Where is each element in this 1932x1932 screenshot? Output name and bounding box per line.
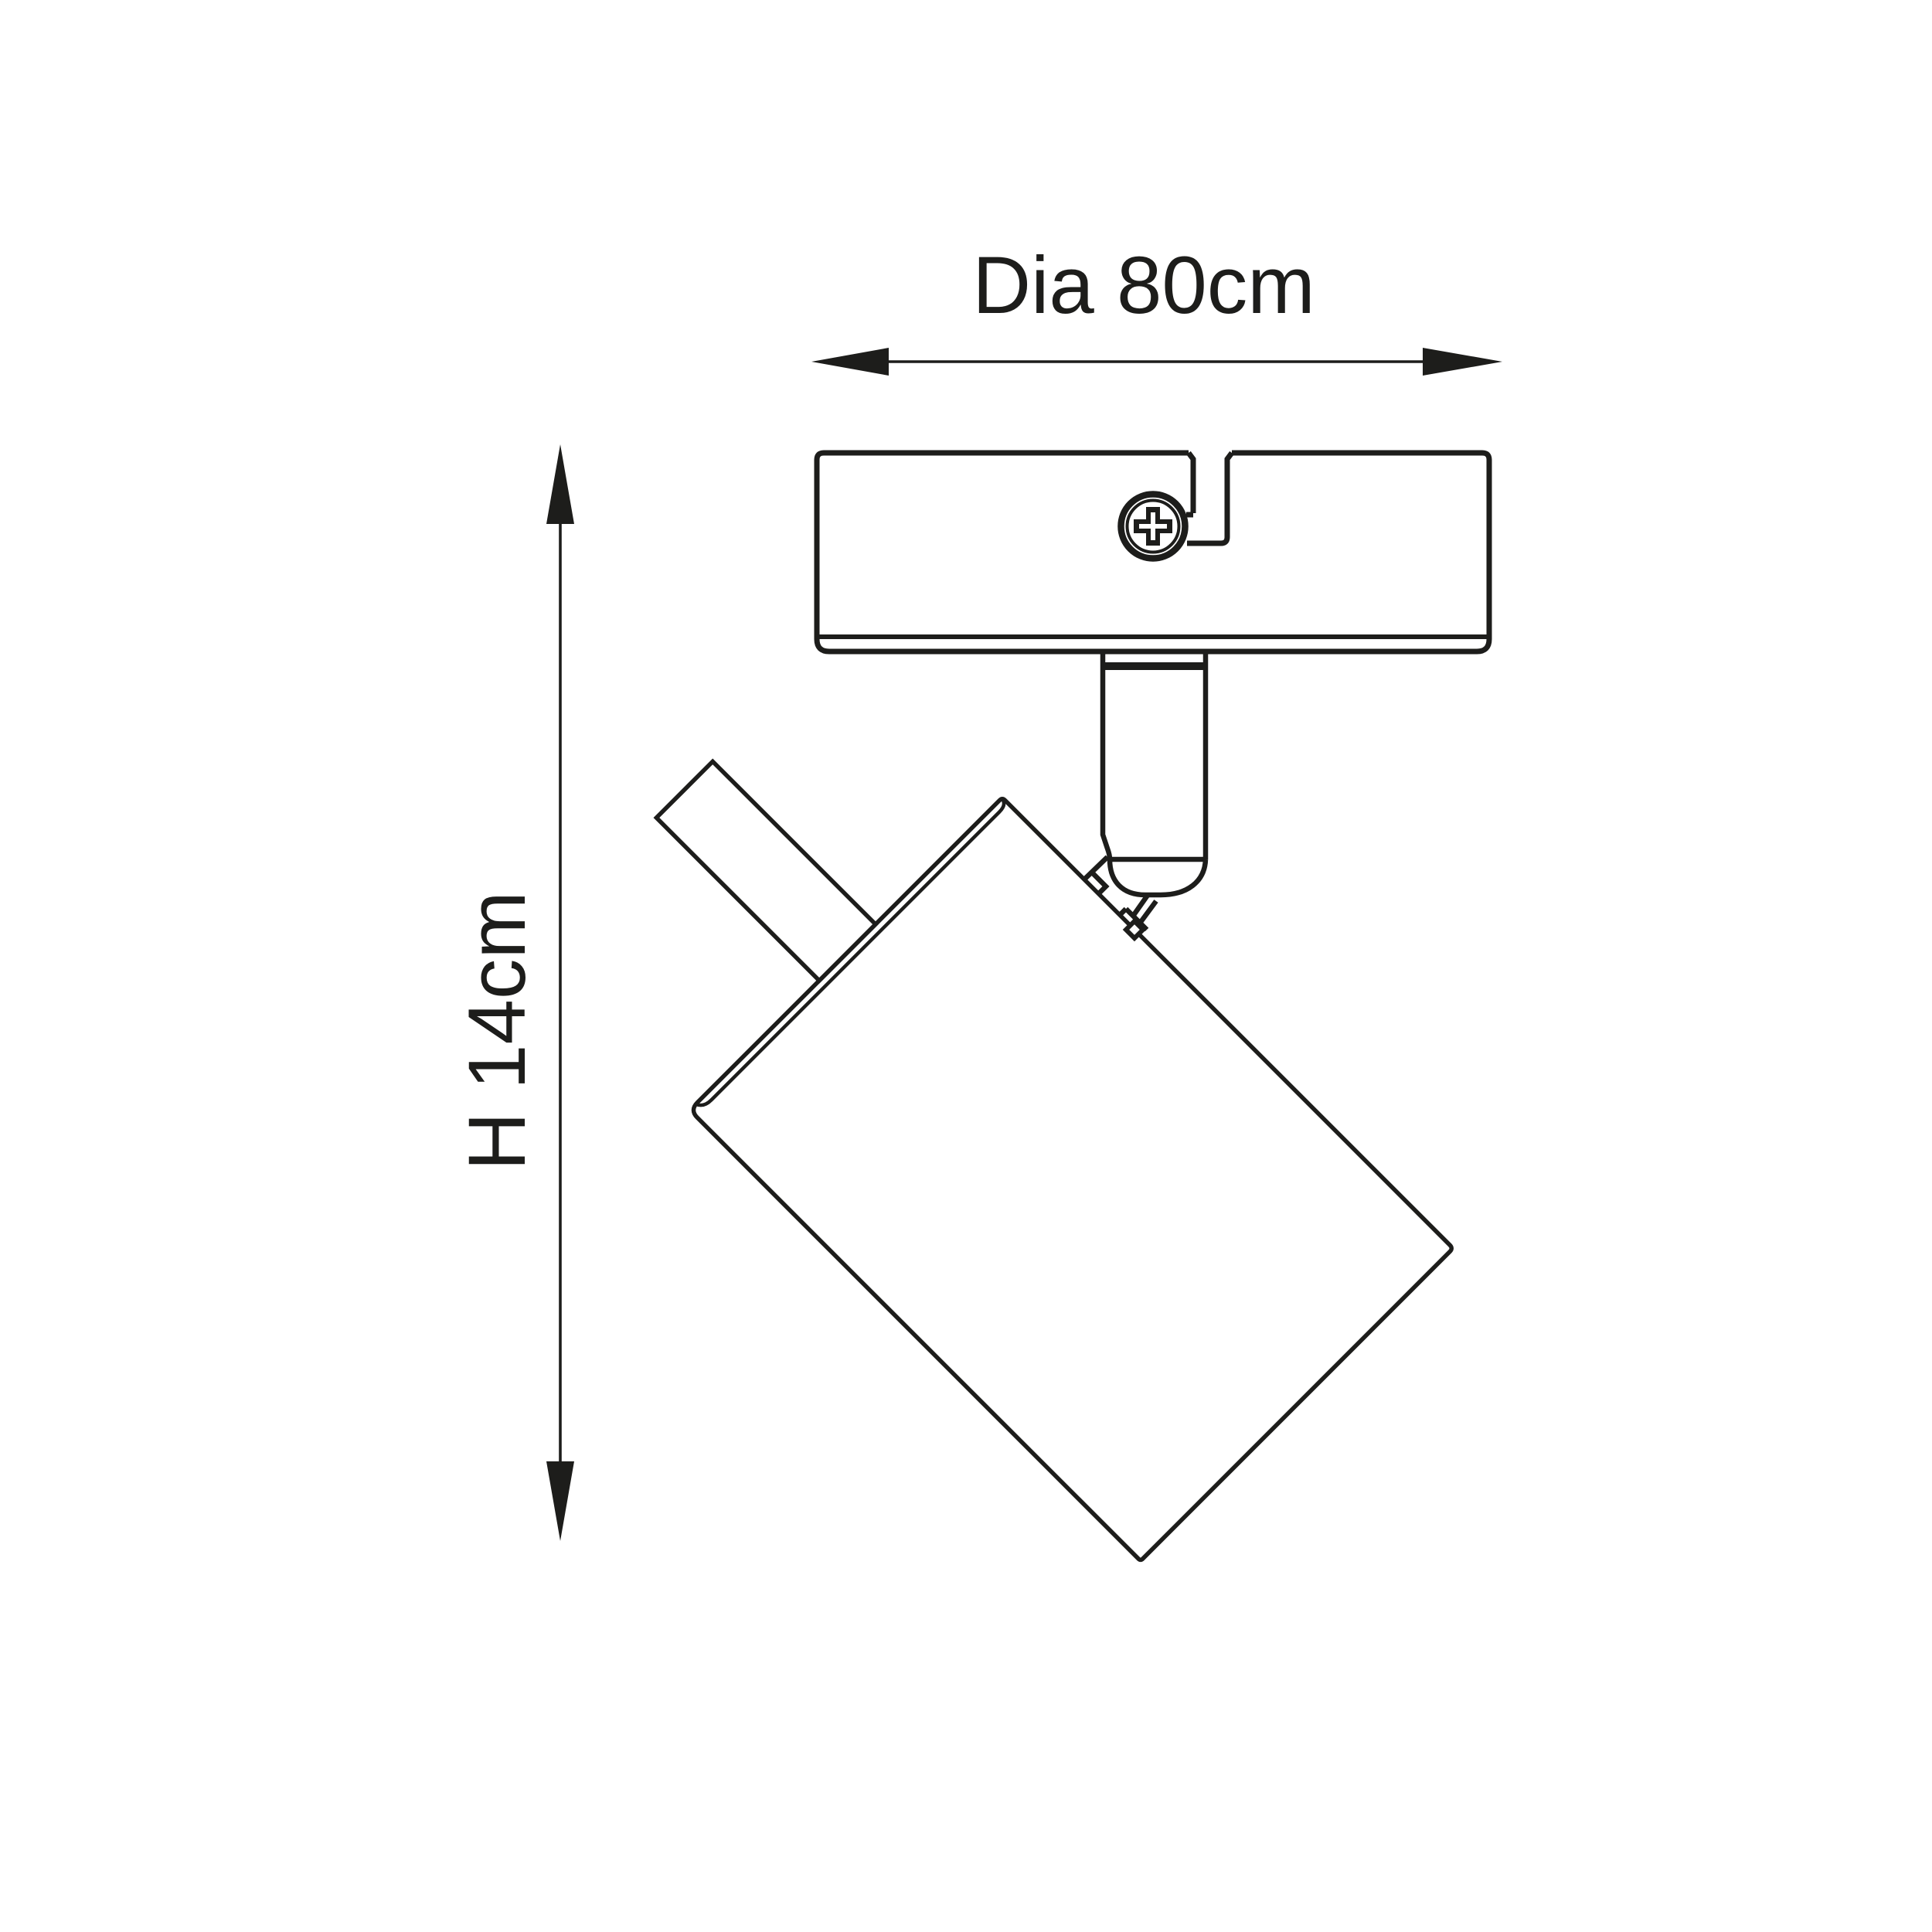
svg-text:H 14cm: H 14cm [452,891,543,1171]
svg-text:Dia 80cm: Dia 80cm [972,240,1315,331]
